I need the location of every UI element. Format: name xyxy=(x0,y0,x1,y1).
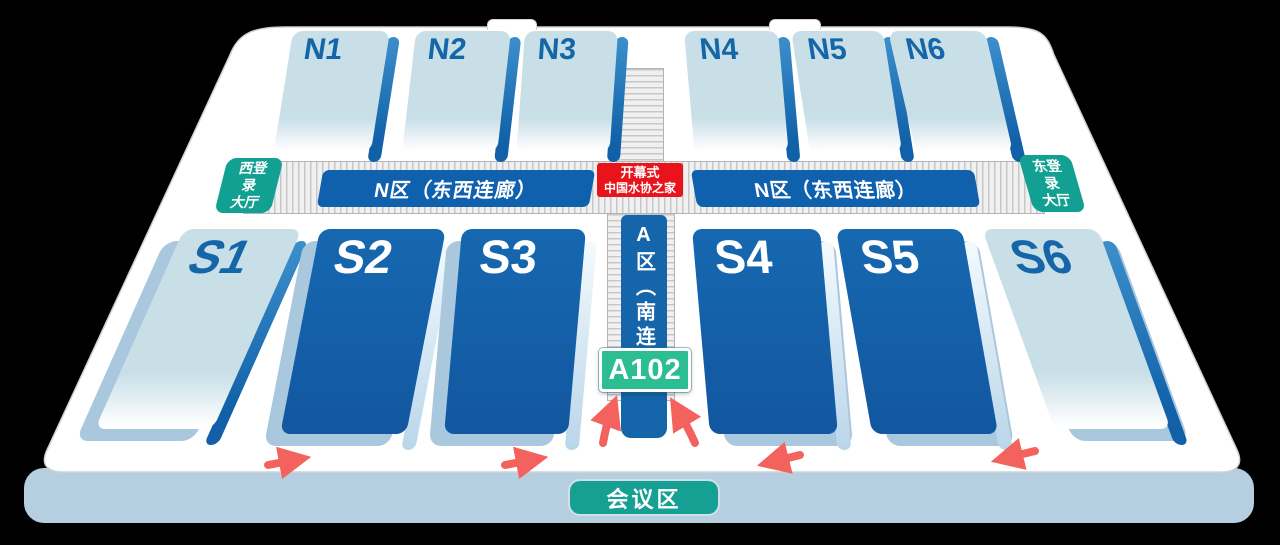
hall-face: N4 xyxy=(684,31,789,152)
hall-label: S5 xyxy=(856,229,923,284)
hall-label: N4 xyxy=(698,33,739,67)
hall-label: N1 xyxy=(301,33,345,67)
hall-n4: N4 xyxy=(684,31,789,152)
exhibition-floor-map: N1 N2 N3 N4 N5 N6 N区（东西连廊） N区（东西连廊） 开幕式 xyxy=(0,0,1280,545)
hall-n3: N3 xyxy=(517,31,618,152)
hall-label: S6 xyxy=(1002,229,1080,284)
hall-face: N1 xyxy=(274,31,390,152)
entry-line: 大厅 xyxy=(229,194,261,211)
hall-label: S2 xyxy=(329,229,397,284)
platform-top-notch xyxy=(487,19,537,30)
platform-top-notch xyxy=(769,19,821,30)
hall-face: S4 xyxy=(692,229,838,434)
hall-s3: S3 xyxy=(444,229,586,434)
hall-face: N3 xyxy=(517,31,618,152)
hall-n2: N2 xyxy=(402,31,511,152)
banner-line1: 开幕式 xyxy=(620,165,659,180)
a-zone-label: A区（南连 xyxy=(630,224,659,438)
entry-line: 录 xyxy=(240,177,258,194)
room-a102-badge: A102 xyxy=(599,348,691,392)
hall-n1: N1 xyxy=(274,31,390,152)
entry-line: 大厅 xyxy=(1040,192,1073,209)
hall-label: N2 xyxy=(426,33,468,67)
a-zone-south-corridor: A区（南连 xyxy=(621,215,667,438)
conference-area-label: 会议区 xyxy=(570,481,718,514)
hall-face: N5 xyxy=(791,31,902,152)
hall-face: S3 xyxy=(444,229,586,434)
hall-label: N3 xyxy=(536,33,577,67)
entry-line: 东登 xyxy=(1031,158,1064,175)
entry-line: 西登 xyxy=(237,160,269,177)
hall-label: S4 xyxy=(712,229,774,284)
entry-line: 录 xyxy=(1043,175,1062,192)
opening-ceremony-banner: 开幕式 中国水协之家 xyxy=(597,163,683,197)
banner-line2: 中国水协之家 xyxy=(604,181,676,195)
hall-s2: S2 xyxy=(280,229,446,434)
hall-n5: N5 xyxy=(791,31,902,152)
hall-label: S3 xyxy=(477,229,539,284)
corridor-label-west: N区（东西连廊） xyxy=(317,170,596,207)
hall-s4: S4 xyxy=(692,229,838,434)
corridor-label-east: N区（东西连廊） xyxy=(691,170,981,207)
hall-label: N5 xyxy=(805,33,849,67)
hall-label: N6 xyxy=(902,33,948,67)
hall-face: N2 xyxy=(402,31,511,152)
hall-label: S1 xyxy=(180,229,262,284)
